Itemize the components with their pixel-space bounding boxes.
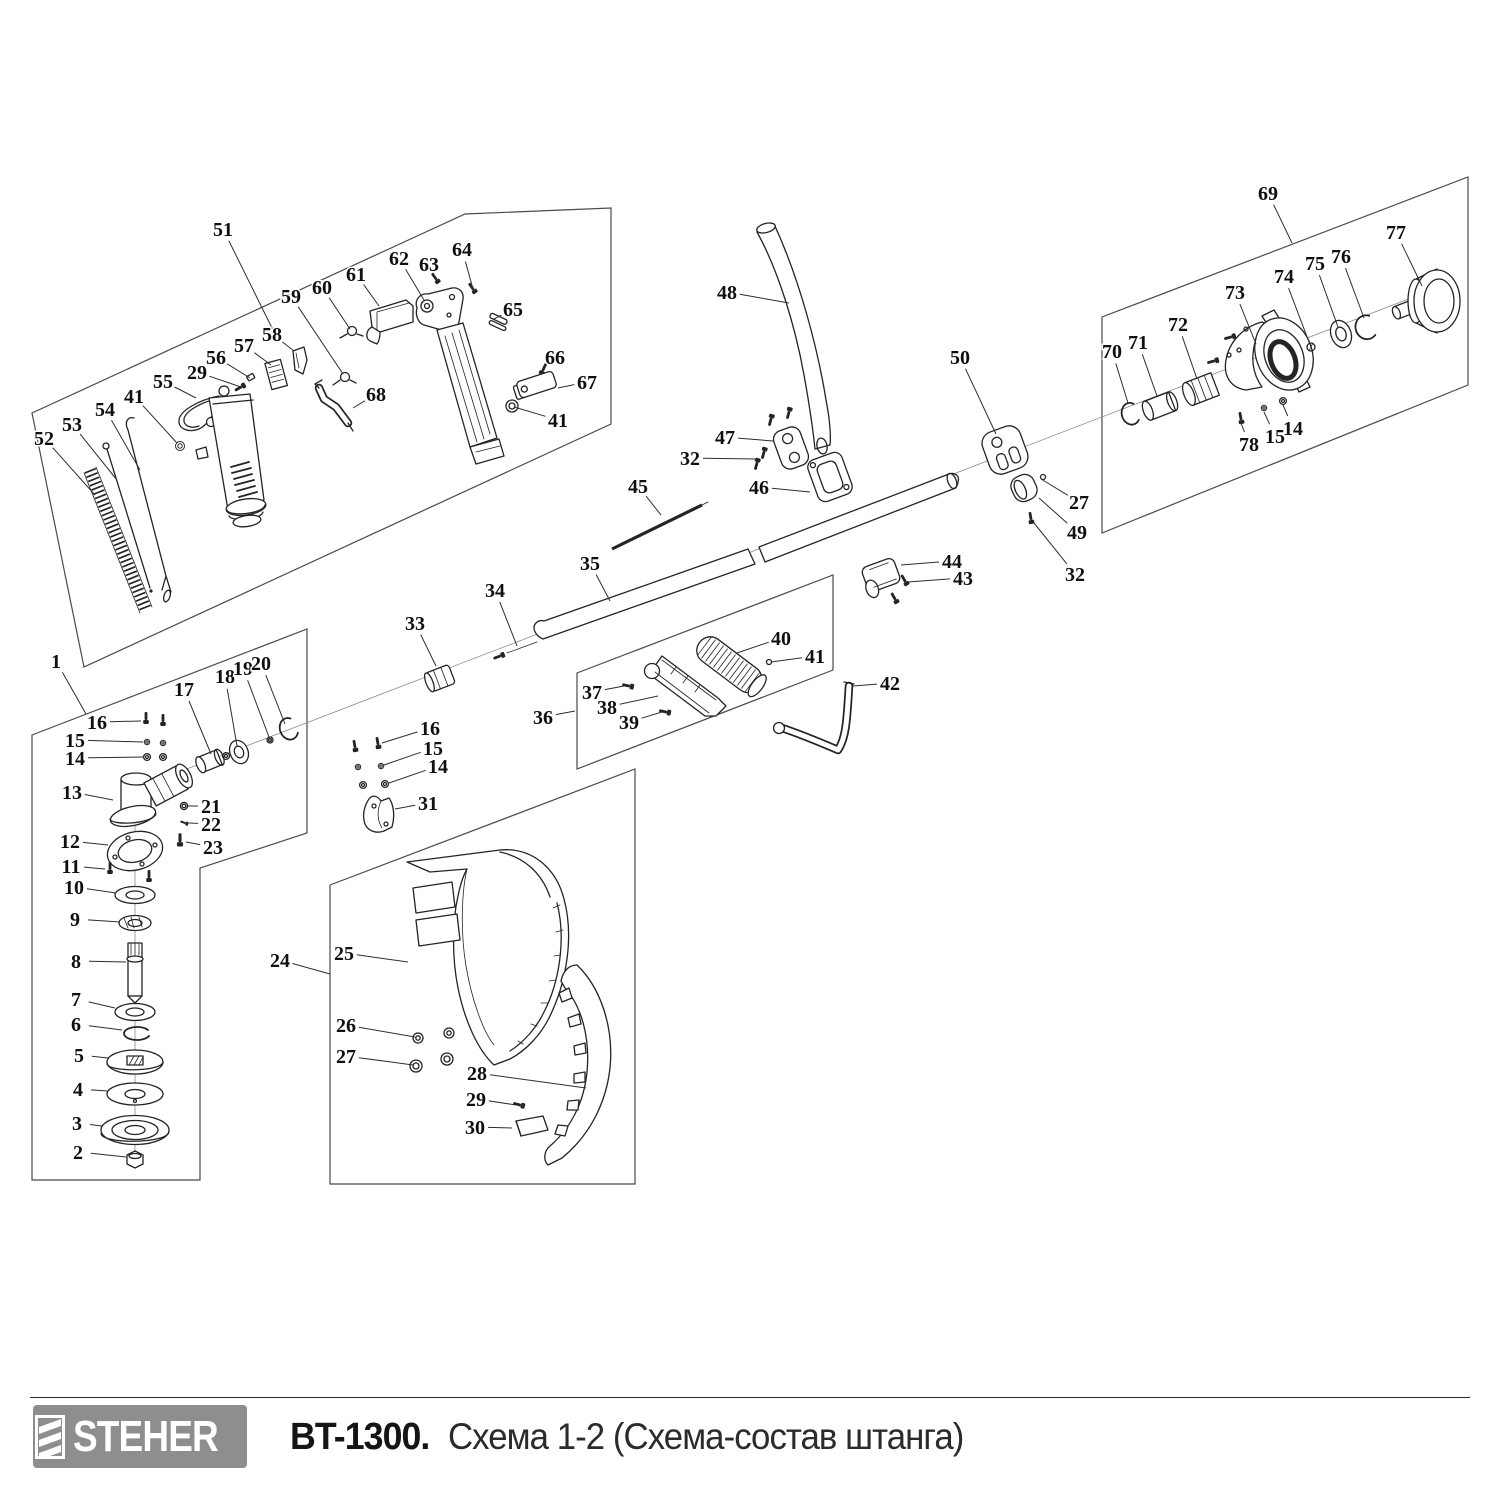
callout-label-56: 56 xyxy=(206,347,226,369)
screw-43 xyxy=(899,574,910,587)
handle-assembly-group xyxy=(84,272,557,613)
callout-label-46: 46 xyxy=(749,477,769,499)
callout-leader-13 xyxy=(85,795,113,801)
handle-half-55 xyxy=(179,386,267,528)
schema-subtitle: Схема 1-2 (Схема-состав штанга) xyxy=(448,1416,963,1458)
callout-leader-32 xyxy=(1034,523,1067,564)
callout-label-23: 23 xyxy=(203,837,223,859)
washer-15 xyxy=(144,739,149,744)
callout-label-76: 76 xyxy=(1331,246,1351,268)
callout-leader-30 xyxy=(488,1127,512,1128)
callout-label-65: 65 xyxy=(503,299,523,321)
callout-leader-56 xyxy=(227,364,250,378)
washer-14 xyxy=(1280,398,1287,405)
screw-23 xyxy=(177,833,183,846)
screw-22 xyxy=(180,819,189,826)
trigger-61 xyxy=(367,300,413,344)
callout-label-55: 55 xyxy=(153,371,173,393)
screw-34 xyxy=(492,652,505,662)
callout-label-60: 60 xyxy=(312,277,332,299)
callout-label-41: 41 xyxy=(548,410,568,432)
callout-label-59: 59 xyxy=(281,286,301,308)
callout-leader-29 xyxy=(209,376,241,387)
clamp-47 xyxy=(771,424,811,471)
callout-leader-5 xyxy=(92,1056,108,1058)
callout-label-41: 41 xyxy=(124,386,144,408)
clip-30 xyxy=(516,1116,548,1136)
schema-title: BT-1300. Схема 1-2 (Схема-состав штанга) xyxy=(290,1414,997,1460)
callout-label-42: 42 xyxy=(880,673,900,695)
callout-label-1: 1 xyxy=(51,651,61,673)
callout-leader-24 xyxy=(293,964,331,975)
nut-2 xyxy=(127,1151,143,1168)
cup-washer-5 xyxy=(107,1050,163,1074)
lock-lever-68 xyxy=(315,380,353,431)
callout-leader-27 xyxy=(359,1058,413,1065)
callout-leader-36 xyxy=(556,711,575,715)
callout-label-41: 41 xyxy=(805,646,825,668)
callout-leader-45 xyxy=(646,496,661,515)
callout-leader-15 xyxy=(1264,412,1270,424)
callout-leader-23 xyxy=(186,842,200,845)
brand-name: STEHER xyxy=(73,1415,218,1459)
callout-leader-7 xyxy=(89,1002,115,1008)
brand-mark-icon xyxy=(35,1415,65,1459)
footer-separator xyxy=(30,1397,1470,1398)
callout-label-25: 25 xyxy=(334,943,354,965)
callout-leader-51 xyxy=(229,241,273,330)
callout-label-3: 3 xyxy=(72,1113,82,1135)
callout-label-52: 52 xyxy=(34,428,54,450)
callout-label-24: 24 xyxy=(270,950,290,972)
drive-rod-45 xyxy=(612,502,708,549)
callout-label-27: 27 xyxy=(1069,492,1089,514)
callout-leader-20 xyxy=(266,675,285,724)
washer-14 xyxy=(360,782,367,789)
callout-leader-33 xyxy=(421,635,436,666)
callout-leader-27 xyxy=(1041,479,1068,495)
callout-label-69: 69 xyxy=(1258,183,1278,205)
screw-47 xyxy=(766,413,775,426)
callout-leader-15 xyxy=(88,740,143,742)
callout-leader-47 xyxy=(738,438,773,441)
callout-leader-39 xyxy=(641,712,662,718)
callout-leader-26 xyxy=(359,1027,415,1037)
gearhead-assembly-group xyxy=(101,712,394,1168)
latch-58 xyxy=(293,347,307,374)
hinge-clamp-50 xyxy=(979,422,1032,477)
screw-11 xyxy=(146,870,152,882)
clamp-46 xyxy=(806,450,855,504)
callout-leader-28 xyxy=(490,1075,586,1088)
screw-73 xyxy=(1207,357,1220,366)
callout-leader-15 xyxy=(384,752,421,765)
screw-16 xyxy=(351,740,359,753)
callout-leader-69 xyxy=(1274,205,1292,243)
callout-label-32: 32 xyxy=(1065,564,1085,586)
callout-label-47: 47 xyxy=(715,427,735,449)
clamp-44 xyxy=(859,557,904,599)
nut-27 xyxy=(410,1060,422,1072)
circlip-76 xyxy=(1353,314,1376,342)
callout-label-40: 40 xyxy=(771,628,791,650)
callout-leader-42 xyxy=(853,684,877,686)
callout-leader-76 xyxy=(1346,268,1365,318)
callout-leader-50 xyxy=(966,369,997,434)
callout-label-17: 17 xyxy=(174,679,194,701)
callout-label-49: 49 xyxy=(1067,522,1087,544)
callout-label-74: 74 xyxy=(1274,266,1294,288)
callout-leader-14 xyxy=(389,770,426,783)
callout-leader-31 xyxy=(395,805,415,809)
washer-19 xyxy=(267,737,273,743)
callout-leader-61 xyxy=(364,285,379,306)
callout-leader-41 xyxy=(514,407,546,416)
callout-label-57: 57 xyxy=(234,335,254,357)
callout-leader-18 xyxy=(227,689,237,746)
washer-15 xyxy=(355,764,360,769)
callout-label-44: 44 xyxy=(942,551,962,573)
nut-21 xyxy=(180,802,187,809)
callout-leader-67 xyxy=(558,385,574,388)
callout-label-7: 7 xyxy=(71,989,81,1011)
circlip-6 xyxy=(124,1027,149,1040)
callout-leader-16 xyxy=(110,721,141,722)
grip-assembly-group xyxy=(622,632,772,716)
callout-label-67: 67 xyxy=(577,372,597,394)
callout-leader-1 xyxy=(62,672,86,714)
callout-label-48: 48 xyxy=(717,282,737,304)
washer-14 xyxy=(144,754,151,761)
callout-leader-16 xyxy=(382,732,418,743)
screw-32 xyxy=(759,446,768,459)
washer-14 xyxy=(160,754,167,761)
pin-56 xyxy=(246,373,255,381)
callout-label-54: 54 xyxy=(95,399,115,421)
nut-27 xyxy=(441,1053,453,1065)
callout-label-62: 62 xyxy=(389,248,409,270)
callout-label-11: 11 xyxy=(62,856,81,878)
callout-label-32: 32 xyxy=(680,448,700,470)
callout-label-58: 58 xyxy=(262,324,282,346)
clutch-drum-77 xyxy=(1391,269,1460,333)
callout-label-6: 6 xyxy=(71,1014,81,1036)
callout-label-19: 19 xyxy=(233,658,253,680)
callout-leader-49 xyxy=(1039,498,1067,523)
callout-leader-14 xyxy=(88,757,143,758)
callout-leader-10 xyxy=(87,889,116,893)
screw-29 xyxy=(234,382,247,393)
callout-leader-3 xyxy=(90,1125,102,1127)
callout-leader-78 xyxy=(1241,423,1244,432)
washer-15 xyxy=(1261,405,1266,410)
blade-holder-3 xyxy=(101,1116,169,1145)
callout-leader-71 xyxy=(1142,354,1157,396)
cable-54 xyxy=(126,418,171,603)
bearing-75 xyxy=(1327,317,1355,350)
callout-leader-75 xyxy=(1319,275,1338,327)
callout-leader-35 xyxy=(596,575,610,602)
callout-label-14: 14 xyxy=(428,756,448,778)
callout-label-34: 34 xyxy=(485,580,505,602)
screw-32 xyxy=(1027,512,1035,525)
callout-leader-14 xyxy=(1283,405,1288,416)
callout-leader-43 xyxy=(908,579,950,582)
callout-label-77: 77 xyxy=(1386,222,1406,244)
callout-label-51: 51 xyxy=(213,219,233,241)
coupler-33 xyxy=(423,664,456,693)
callout-label-63: 63 xyxy=(419,254,439,276)
callout-label-33: 33 xyxy=(405,613,425,635)
callout-label-68: 68 xyxy=(366,384,386,406)
clutch-assembly-group xyxy=(1119,269,1460,427)
callout-label-29: 29 xyxy=(187,362,207,384)
callout-label-30: 30 xyxy=(465,1117,485,1139)
callout-leader-17 xyxy=(189,701,211,754)
screw-39 xyxy=(659,708,672,716)
callout-label-26: 26 xyxy=(336,1015,356,1037)
callout-leader-40 xyxy=(737,642,769,653)
diagram-canvas: 5152535441552956575859606162636465666768… xyxy=(0,0,1500,1396)
circlip-20 xyxy=(277,716,300,742)
callout-label-29: 29 xyxy=(466,1089,486,1111)
callout-label-64: 64 xyxy=(452,239,472,261)
callout-label-53: 53 xyxy=(62,414,82,436)
callout-label-61: 61 xyxy=(346,264,366,286)
callout-leader-48 xyxy=(740,294,789,303)
nut-41c xyxy=(767,660,772,665)
callout-leader-29 xyxy=(489,1101,516,1105)
callout-leader-34 xyxy=(500,602,517,646)
clamp-67 xyxy=(512,371,557,400)
callout-label-31: 31 xyxy=(418,793,438,815)
bearing-18 xyxy=(226,738,252,767)
callout-leader-72 xyxy=(1182,336,1197,379)
callout-leader-77 xyxy=(1402,244,1422,286)
screw-43 xyxy=(889,592,900,605)
callout-leader-38 xyxy=(620,696,658,704)
callout-leader-37 xyxy=(605,686,624,690)
bearing-10 xyxy=(115,887,155,904)
callout-leader-60 xyxy=(329,298,350,329)
callout-label-5: 5 xyxy=(74,1045,84,1067)
callout-leader-9 xyxy=(88,920,120,922)
slider-57 xyxy=(265,359,287,389)
callout-label-8: 8 xyxy=(71,951,81,973)
screw-16 xyxy=(143,712,149,724)
bracket-31 xyxy=(364,796,394,832)
callout-leader-25 xyxy=(357,955,408,962)
callout-label-38: 38 xyxy=(597,697,617,719)
callout-label-50: 50 xyxy=(950,347,970,369)
exploded-parts-diagram: 5152535441552956575859606162636465666768… xyxy=(0,0,1500,1500)
callout-leader-11 xyxy=(84,867,105,869)
sleeve-72 xyxy=(1180,373,1219,407)
loop-tube-42 xyxy=(774,682,855,750)
ring-60 xyxy=(340,327,363,339)
callout-leader-44 xyxy=(901,562,939,565)
bearing-7 xyxy=(115,1004,155,1021)
callout-label-66: 66 xyxy=(545,347,565,369)
callout-leader-8 xyxy=(89,961,126,962)
clutch-housing-73 xyxy=(1225,310,1323,399)
callout-leader-70 xyxy=(1116,363,1128,403)
callout-leader-41 xyxy=(143,406,177,443)
callout-leader-58 xyxy=(282,342,294,351)
washer-26 xyxy=(413,1033,423,1043)
ring-59 xyxy=(333,373,356,386)
callout-label-72: 72 xyxy=(1168,314,1188,336)
callout-leader-68 xyxy=(353,401,365,408)
axis-lines xyxy=(135,285,1445,1152)
callout-label-14: 14 xyxy=(65,748,85,770)
callout-leader-55 xyxy=(175,387,196,398)
washer-4 xyxy=(107,1083,163,1105)
callout-label-13: 13 xyxy=(62,782,82,804)
callout-label-73: 73 xyxy=(1225,282,1245,304)
guard-25 xyxy=(407,850,569,1065)
nut-41b xyxy=(506,400,518,412)
callout-label-35: 35 xyxy=(580,553,600,575)
callout-label-15: 15 xyxy=(1265,426,1285,448)
guard-assembly-group xyxy=(407,850,611,1165)
callout-label-16: 16 xyxy=(87,712,107,734)
callout-leader-54 xyxy=(112,420,141,470)
gear-9 xyxy=(119,916,151,931)
callout-label-36: 36 xyxy=(533,707,553,729)
callout-leader-4 xyxy=(91,1090,108,1091)
callout-leader-19 xyxy=(248,680,269,737)
callout-leader-12 xyxy=(83,842,108,845)
callout-label-18: 18 xyxy=(215,666,235,688)
handlebar-48 xyxy=(756,221,831,455)
callout-label-22: 22 xyxy=(201,814,221,836)
gear-head-13 xyxy=(109,761,196,830)
washer-15 xyxy=(378,763,383,768)
brand-logo: STEHER xyxy=(33,1405,247,1468)
shaft-8 xyxy=(127,943,143,1003)
callout-label-2: 2 xyxy=(73,1142,83,1164)
callout-label-4: 4 xyxy=(73,1079,83,1101)
callout-label-27: 27 xyxy=(336,1046,356,1068)
callout-label-10: 10 xyxy=(64,877,84,899)
screw-16 xyxy=(160,714,166,726)
callout-leader-32 xyxy=(703,458,757,459)
callout-leader-57 xyxy=(254,353,271,365)
callout-label-70: 70 xyxy=(1102,341,1122,363)
flange-12 xyxy=(103,826,167,876)
callout-leader-2 xyxy=(91,1153,126,1157)
screw-78 xyxy=(1237,412,1245,425)
callout-label-14: 14 xyxy=(1283,418,1303,440)
washer-26 xyxy=(444,1028,454,1038)
collar-49 xyxy=(1008,471,1041,505)
callout-label-9: 9 xyxy=(70,909,80,931)
callout-label-20: 20 xyxy=(251,653,271,675)
callout-leader-6 xyxy=(89,1026,122,1030)
spring-52 xyxy=(84,467,152,613)
circlip-70 xyxy=(1119,402,1139,427)
callout-label-75: 75 xyxy=(1305,253,1325,275)
schema-model: BT-1300. xyxy=(290,1416,429,1459)
bushing-71 xyxy=(1140,390,1180,421)
callout-leader-41 xyxy=(771,658,802,662)
callout-label-16: 16 xyxy=(420,718,440,740)
washer-15 xyxy=(160,740,165,745)
washer-14 xyxy=(382,781,389,788)
callout-label-39: 39 xyxy=(619,712,639,734)
screw-16 xyxy=(374,737,382,750)
callout-label-71: 71 xyxy=(1128,332,1148,354)
callout-leader-46 xyxy=(772,488,810,492)
callout-label-28: 28 xyxy=(467,1063,487,1085)
callout-label-78: 78 xyxy=(1239,434,1259,456)
screw-47 xyxy=(784,406,793,419)
callout-label-45: 45 xyxy=(628,476,648,498)
callout-label-12: 12 xyxy=(60,831,80,853)
